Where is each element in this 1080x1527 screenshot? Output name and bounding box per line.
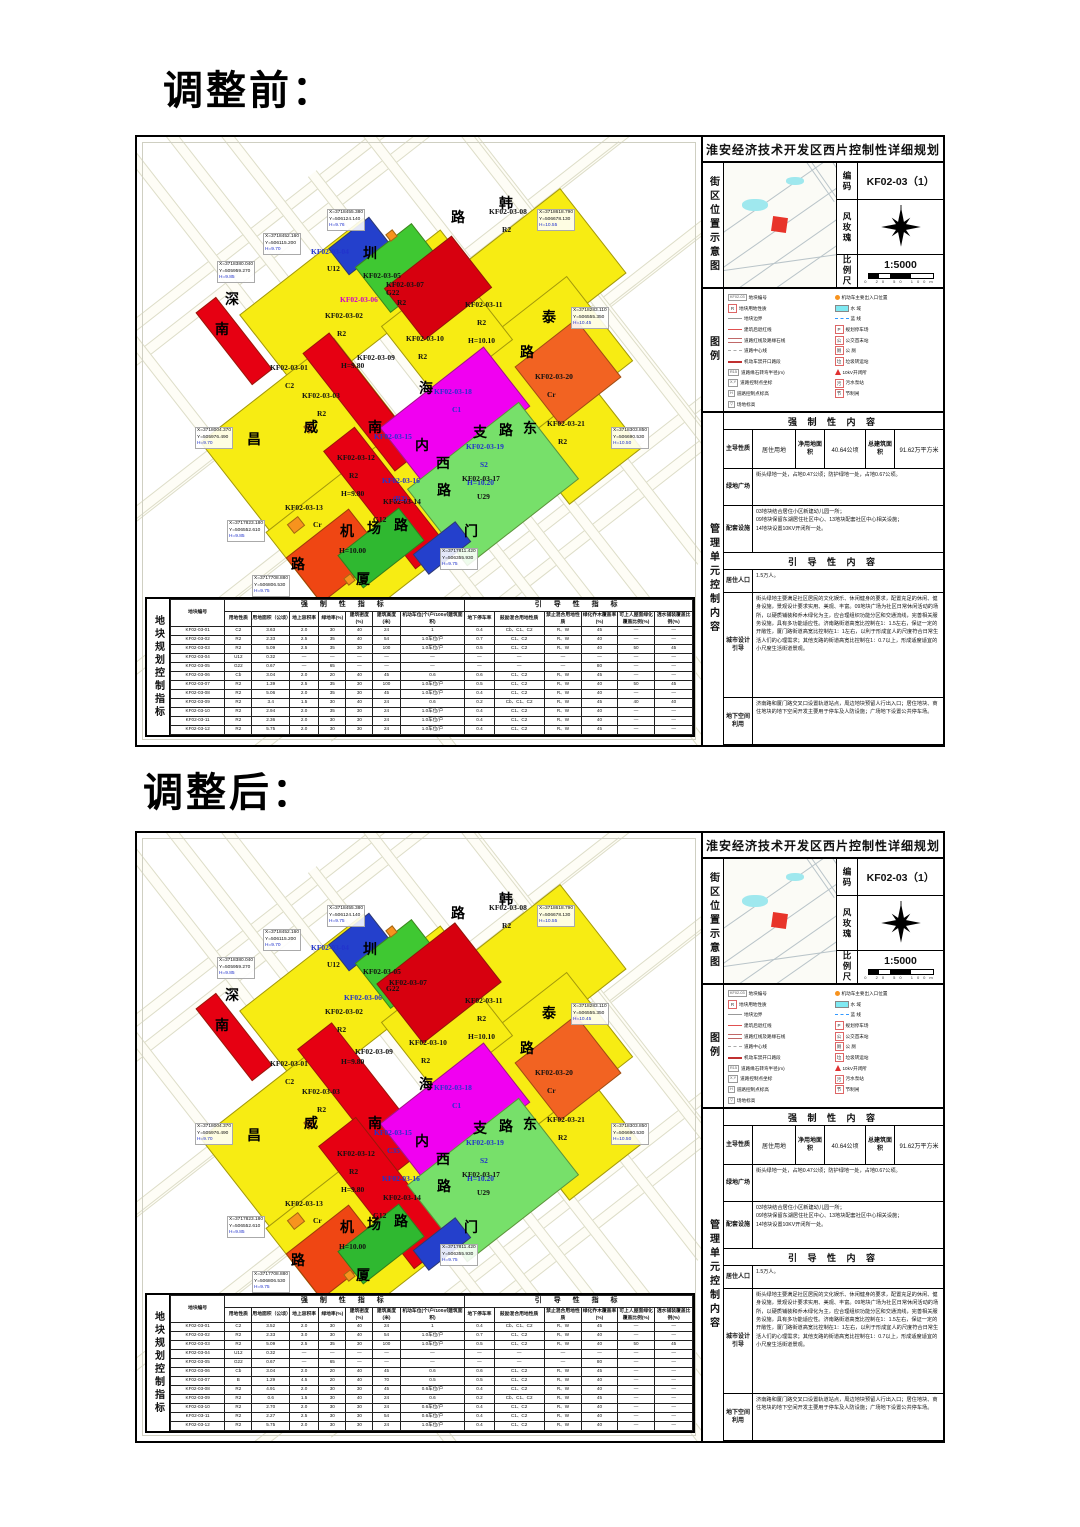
table-cell: — bbox=[319, 653, 346, 662]
green-space-row: 绿地广场 街头绿地一处，占地0.47公顷；防护绿地一处，占地0.67公顷。 bbox=[724, 469, 943, 506]
location-section-label: 街区位置示意图 bbox=[703, 859, 724, 983]
parcel-label: R2 bbox=[397, 298, 406, 307]
legend-item: X,Y道路控制点坐标 bbox=[728, 1074, 835, 1083]
table-row: KF02-03-09R23.41.53040240.60.2Cb、C1、C2R、… bbox=[171, 698, 693, 707]
road-name-char: 内 bbox=[415, 435, 429, 455]
table-cell: 1.0车位/户 bbox=[400, 635, 465, 644]
cp-x: X=3718452.160 bbox=[265, 930, 299, 937]
table-cell: 30 bbox=[319, 716, 346, 725]
table-cell: 20 bbox=[319, 1376, 346, 1385]
table-cell: 2.5 bbox=[289, 635, 318, 644]
legend-item: KF02-03地块编号 bbox=[728, 293, 835, 302]
legend-swatch bbox=[728, 338, 742, 343]
table-cell: 24 bbox=[373, 725, 400, 734]
table-cell: — bbox=[346, 1358, 373, 1367]
indicator-table: 地块编号强 制 性 指 标引 导 性 指 标用地性质用地面积（公顷）地上容积率绿… bbox=[170, 599, 693, 735]
table-cell: 4.5 bbox=[289, 1376, 318, 1385]
guiding-title: 引 导 性 内 容 bbox=[724, 1249, 943, 1266]
road-name-char: 内 bbox=[415, 1131, 429, 1151]
legend-item: 机动车主要出入口位置 bbox=[835, 293, 942, 302]
parcel-label: KF02-03-06 bbox=[344, 993, 382, 1002]
road-name-char: 海 bbox=[419, 1074, 433, 1094]
table-cell: R、W bbox=[544, 707, 582, 716]
table-cell: — bbox=[617, 635, 655, 644]
parcel-label: R2 bbox=[317, 409, 326, 418]
cp-h: H=10.55 bbox=[539, 919, 573, 926]
table-cell: U12 bbox=[225, 653, 252, 662]
table-row: KF02-03-12R25.752.03030241.0车位/户0.4C1、C2… bbox=[171, 725, 693, 734]
code-label: 编码 bbox=[837, 163, 858, 199]
table-cell: 2.33 bbox=[252, 635, 290, 644]
table-cell: 3.4 bbox=[252, 698, 290, 707]
table-cell: 50 bbox=[617, 1340, 655, 1349]
road-name-char: 门 bbox=[464, 521, 478, 541]
road-name-char: 泰 bbox=[542, 1003, 556, 1023]
table-cell: 1.0车位/户 bbox=[400, 1331, 465, 1340]
table-cell: C1、C2 bbox=[494, 644, 544, 653]
legend-item-label: 10kV开闭所 bbox=[843, 368, 867, 377]
code-row: 编码 KF02-03（1） bbox=[837, 859, 943, 896]
table-cell: 1.0车位/户 bbox=[400, 1421, 465, 1430]
table-cell: 0.5 bbox=[400, 1376, 465, 1385]
table-header-cell: 地块编号 bbox=[171, 1296, 225, 1323]
indicator-table-host: 地块编号强 制 性 指 标引 导 性 指 标用地性质用地面积（公顷）地上容积率绿… bbox=[170, 1295, 693, 1431]
table-header-cell: 绿化乔木覆盖率(%) bbox=[582, 1307, 617, 1322]
table-cell: — bbox=[373, 662, 400, 671]
parcel-label: KF02-03-12 bbox=[337, 1149, 375, 1158]
location-right-column: 编码 KF02-03（1） 风玫瑰 bbox=[837, 163, 943, 287]
guiding-title: 引 导 性 内 容 bbox=[724, 553, 943, 570]
green-space-label: 绿地广场 bbox=[724, 1165, 753, 1201]
road-name-char: 路 bbox=[437, 1176, 451, 1196]
table-cell: C1、C2 bbox=[494, 1340, 544, 1349]
table-cell: 0.6 bbox=[252, 1394, 290, 1403]
table-cell: 2.94 bbox=[252, 707, 290, 716]
table-cell: — bbox=[617, 716, 655, 725]
legend-item-label: 道路控制点坐标 bbox=[740, 1074, 772, 1083]
control-point: X=3718618.790Y=506678.130H=10.55 bbox=[537, 209, 575, 231]
table-cell: 1.0车位/户 bbox=[400, 680, 465, 689]
table-cell: 3.04 bbox=[252, 1367, 290, 1376]
table-cell: R、W bbox=[544, 698, 582, 707]
table-cell: KF02-03-06 bbox=[171, 1367, 225, 1376]
table-cell: 24 bbox=[373, 1322, 400, 1331]
control-point: X=3717708.880Y=506806.530H=9.75 bbox=[252, 1271, 290, 1293]
legend-item: P规划停车场 bbox=[835, 1021, 942, 1030]
legend-item: R地块用地性质 bbox=[728, 304, 835, 313]
table-header-cell: 禁止混合用地性质 bbox=[544, 1307, 582, 1322]
table-cell: KF02-03-01 bbox=[171, 1322, 225, 1331]
parcel-label: R2 bbox=[349, 471, 358, 480]
parcel-label: KF02-03-18 bbox=[434, 387, 472, 396]
table-cell: R、W bbox=[544, 1340, 582, 1349]
legend-item: 公公交首末站 bbox=[835, 336, 942, 345]
parcel-label: KF02-03-04 bbox=[311, 943, 349, 952]
road-name-char: 路 bbox=[394, 1211, 408, 1231]
legend-item-label: 道路中心线 bbox=[744, 1042, 767, 1051]
minimap-street bbox=[732, 929, 837, 983]
table-cell: 45 bbox=[582, 671, 617, 680]
minimap-street bbox=[771, 859, 837, 908]
legend-swatch: R bbox=[728, 1000, 737, 1009]
page: { "headings": { "before": "调整前：", "after… bbox=[0, 0, 1080, 1527]
table-cell: R2 bbox=[225, 644, 252, 653]
table-row: KF02-03-07R21.392.535301001.0车位/户0.5C1、C… bbox=[171, 680, 693, 689]
table-row: KF02-03-08R24.912.03030450.6车位/户0.4C1、C2… bbox=[171, 1385, 693, 1394]
cp-x: X=3718004.370 bbox=[197, 428, 231, 435]
legend-item-label: 公交首末站 bbox=[846, 1032, 869, 1041]
table-cell: 1.29 bbox=[252, 1376, 290, 1385]
parcel-label: R2 bbox=[337, 1025, 346, 1034]
legend-item-label: 10kV开闭所 bbox=[843, 1064, 867, 1073]
table-cell: R、W bbox=[544, 716, 582, 725]
table-cell: 0.4 bbox=[465, 1322, 494, 1331]
table-cell: 30 bbox=[319, 698, 346, 707]
legend-swatch bbox=[728, 1046, 742, 1047]
table-cell: — bbox=[655, 635, 693, 644]
legend-swatch bbox=[728, 1034, 742, 1039]
table-cell: 1 bbox=[400, 1322, 465, 1331]
cp-h: H=9.70 bbox=[197, 1137, 231, 1144]
legend-item: ▽场地标高 bbox=[728, 400, 835, 409]
table-cell: 0.67 bbox=[252, 662, 290, 671]
parcel-label: KF02-03-03 bbox=[302, 1087, 340, 1096]
legend-swatch: 公 bbox=[835, 1032, 844, 1041]
table-row: KF02-03-07B1.294.52040700.50.5C1、C2R、W40… bbox=[171, 1376, 693, 1385]
cp-h: H=9.70 bbox=[265, 247, 299, 254]
table-cell: — bbox=[655, 1367, 693, 1376]
table-cell: 30 bbox=[346, 1403, 373, 1412]
cp-x: X=3718455.380 bbox=[329, 210, 363, 217]
table-cell: 2.0 bbox=[289, 626, 318, 635]
table-cell: R2 bbox=[225, 716, 252, 725]
legend-item: 机动车主要出入口位置 bbox=[835, 989, 942, 998]
table-header-cell: 鼓励混合用地性质 bbox=[494, 1307, 544, 1322]
table-cell: C1、C2 bbox=[494, 1367, 544, 1376]
table-cell: 24 bbox=[373, 1394, 400, 1403]
net-area-label: 净用地面积 bbox=[796, 1126, 825, 1164]
control-point: X=3717811.420Y=506355.930H=9.75 bbox=[440, 1244, 478, 1266]
table-cell: R、W bbox=[544, 671, 582, 680]
legend-item-label: 污水泵站 bbox=[846, 378, 864, 387]
road-name-char: 泰 bbox=[542, 307, 556, 327]
parcel-label: KF02-03-17 bbox=[462, 1170, 500, 1179]
table-cell: 30 bbox=[346, 1340, 373, 1349]
table-cell: 50 bbox=[617, 644, 655, 653]
table-cell: C2 bbox=[225, 626, 252, 635]
table-cell: R、W bbox=[544, 1331, 582, 1340]
mandatory-summary-row: 主导性质 居住用地 净用地面积 40.64公顷 总建筑面积 91.62万平方米 bbox=[724, 1126, 943, 1165]
road-name-char: 威 bbox=[304, 417, 318, 437]
legend-item: 节节制闸 bbox=[835, 389, 942, 398]
control-point: X=3718303.850Y=506690.530H=10.50 bbox=[611, 427, 649, 449]
cp-h: H=9.75 bbox=[442, 562, 476, 569]
cp-x: X=3718380.040 bbox=[219, 262, 253, 269]
legend-swatch: R15 bbox=[728, 369, 739, 376]
table-cell: 40 bbox=[655, 698, 693, 707]
table-cell: — bbox=[289, 662, 318, 671]
windrose-label: 风玫瑰 bbox=[837, 896, 858, 950]
table-cell: KF02-03-07 bbox=[171, 680, 225, 689]
legend-swatch: R bbox=[728, 304, 737, 313]
parcel-label: KF02-03-13 bbox=[285, 1199, 323, 1208]
legend-item-label: 规划停车场 bbox=[846, 1021, 869, 1030]
table-cell: — bbox=[655, 707, 693, 716]
net-area-label: 净用地面积 bbox=[796, 430, 825, 468]
population-row: 居住人口 1.5万人。 bbox=[724, 570, 943, 593]
legend-item: 地块边界 bbox=[728, 314, 835, 323]
legend-column-right: 机动车主要出入口位置水 域蓝 线P规划停车场公公交首末站厕公 厕垃垃圾转运站10… bbox=[835, 293, 942, 409]
control-point: X=3717823.180Y=506552.610H=9.85 bbox=[227, 1216, 265, 1238]
table-header-cell: 鼓励混合用地性质 bbox=[494, 611, 544, 626]
road-name-char: 厦 bbox=[356, 569, 370, 589]
parcel-label: KF02-03-03 bbox=[302, 391, 340, 400]
cp-h: H=9.75 bbox=[329, 919, 363, 926]
table-cell: 0.7 bbox=[465, 635, 494, 644]
control-point: X=3717823.180Y=506552.610H=9.85 bbox=[227, 520, 265, 542]
table-cell: 45 bbox=[582, 626, 617, 635]
info-panel: 淮安经济技术开发区西片控制性详细规划 街区位置示意图 编码 KF02-03（1）… bbox=[701, 137, 943, 745]
sheet-before: 深南圳路韩泰路海南内支路东西路门机场路厦路昌威KF02-03-02R2KF02-… bbox=[135, 135, 945, 747]
facility-row: 配套设施 03地块结合居住小区新建幼儿园一所； 09地块保留东湖居住社区中心、1… bbox=[724, 1202, 943, 1249]
table-cell: — bbox=[655, 716, 693, 725]
windrose-icon bbox=[879, 205, 923, 249]
table-cell: — bbox=[582, 1349, 617, 1358]
table-cell: 0.4 bbox=[465, 725, 494, 734]
cp-x: X=3717823.180 bbox=[229, 521, 263, 528]
parcel-label: R2 bbox=[502, 921, 511, 930]
legend-item-label: 道路红线及路缘石线 bbox=[744, 336, 785, 345]
table-cell: 2.0 bbox=[289, 671, 318, 680]
parcel-label: KF02-03-01 bbox=[270, 1059, 308, 1068]
cp-h: H=9.85 bbox=[229, 534, 263, 541]
parcel-label: Cr bbox=[547, 1086, 556, 1095]
table-cell: 30 bbox=[319, 725, 346, 734]
underground-label: 地下空间利用 bbox=[724, 698, 753, 744]
table-cell: 30 bbox=[319, 1412, 346, 1421]
table-cell: 4.91 bbox=[252, 1385, 290, 1394]
table-cell: — bbox=[400, 653, 465, 662]
legend-item: R地块用地性质 bbox=[728, 1000, 835, 1009]
table-cell: 40 bbox=[582, 635, 617, 644]
road-name-char: 路 bbox=[291, 1250, 305, 1270]
control-point: X=3718380.040Y=505959.270H=9.85 bbox=[217, 957, 255, 979]
table-cell: 40 bbox=[346, 1394, 373, 1403]
facility-text: 03地块结合居住小区新建幼儿园一所； 09地块保留东湖居住社区中心、13地块配套… bbox=[753, 506, 943, 552]
legend-swatch: R15 bbox=[728, 1065, 739, 1072]
facility-row: 配套设施 03地块结合居住小区新建幼儿园一所； 09地块保留东湖居住社区中心、1… bbox=[724, 506, 943, 553]
control-point: X=3718303.850Y=506690.530H=10.50 bbox=[611, 1123, 649, 1145]
table-cell: 40 bbox=[617, 698, 655, 707]
parcel-label: Cr bbox=[547, 390, 556, 399]
road-name-char: 路 bbox=[520, 1038, 534, 1058]
table-row: KF02-03-05G220.67—65——————80—— bbox=[171, 1358, 693, 1367]
underground-text: 济南路和厦门路交叉口设置轨道站点，周边地块预留人行出入口；居住地块、商住地块的地… bbox=[753, 698, 943, 744]
indicator-table-side-label: 地块规划控制指标 bbox=[147, 599, 170, 735]
legend-swatch: 厕 bbox=[835, 346, 844, 355]
table-cell: 35 bbox=[319, 707, 346, 716]
scale-ticks: 0 20 50 100m bbox=[864, 975, 936, 980]
table-row: KF02-03-03R25.092.535301001.0车位/户0.5C1、C… bbox=[171, 644, 693, 653]
table-cell: — bbox=[494, 662, 544, 671]
road-name-char: 东 bbox=[523, 418, 537, 438]
table-header-cell: 用地面积（公顷） bbox=[252, 611, 290, 626]
table-cell: 40 bbox=[582, 1385, 617, 1394]
parcel-label: KF02-03-15 bbox=[374, 1128, 412, 1137]
location-section: 街区位置示意图 编码 KF02-03（1） 风玫瑰 bbox=[703, 163, 943, 289]
table-cell: 35 bbox=[319, 689, 346, 698]
cp-x: X=3718303.850 bbox=[613, 428, 647, 435]
location-minimap bbox=[724, 163, 837, 287]
table-header-cell: 强 制 性 指 标 bbox=[225, 600, 465, 612]
cp-h: H=10.55 bbox=[539, 223, 573, 230]
parcel-label: U12 bbox=[327, 960, 340, 969]
table-cell: Cb、C1、C2 bbox=[494, 1322, 544, 1331]
table-cell: — bbox=[655, 1322, 693, 1331]
table-cell: — bbox=[655, 1331, 693, 1340]
legend-item-label: 道路中心线 bbox=[744, 346, 767, 355]
table-cell: 0.32 bbox=[252, 653, 290, 662]
table-row: KF02-03-03R25.092.535301001.0车位/户0.5C1、C… bbox=[171, 1340, 693, 1349]
control-point: X=3718283.110Y=506555.350H=10.45 bbox=[571, 1003, 609, 1025]
table-cell: — bbox=[544, 653, 582, 662]
legend-item-label: 机动车禁开口路段 bbox=[744, 357, 781, 366]
parcel-label: KF02-03-06 bbox=[340, 295, 378, 304]
table-cell: 1.0车位/户 bbox=[400, 716, 465, 725]
table-cell: — bbox=[373, 1358, 400, 1367]
table-cell: 45 bbox=[582, 698, 617, 707]
table-cell: — bbox=[465, 653, 494, 662]
plan-sheet: 深南圳路韩泰路海南内支路东西路门机场路厦路昌威KF02-03-02R2KF02-… bbox=[135, 831, 945, 1443]
parcel-label: KF02-03-10 bbox=[409, 1038, 447, 1047]
design-guidance-text: 街头绿地主要满足社区居民的文化娱乐、休闲健身的要求，配置充足的休闲、健身设施，景… bbox=[753, 593, 943, 697]
table-cell: C1、C2 bbox=[494, 1376, 544, 1385]
table-cell: 0.4 bbox=[465, 689, 494, 698]
road-name-char: 支 bbox=[473, 1118, 487, 1138]
table-cell: 2.5 bbox=[289, 644, 318, 653]
table-row: KF02-03-02R22.332.53540541.0车位/户0.7C1、C2… bbox=[171, 635, 693, 644]
table-cell: R、W bbox=[544, 725, 582, 734]
parcel-label: KF02-03-04 bbox=[311, 247, 349, 256]
parcel-label: G12 bbox=[373, 1211, 386, 1220]
legend-item: 污污水泵站 bbox=[835, 378, 942, 387]
location-section: 街区位置示意图 编码 KF02-03（1） 风玫瑰 bbox=[703, 859, 943, 985]
table-row: KF02-03-06Cb3.042.02040450.60.6C1、C2R、W4… bbox=[171, 671, 693, 680]
legend-item: H道路控制点标高 bbox=[728, 1085, 835, 1094]
control-point: X=3718455.380Y=506124.140H=9.76 bbox=[327, 209, 365, 231]
table-row: KF02-03-06Cb3.042.02040450.60.6C1、C2R、W4… bbox=[171, 1367, 693, 1376]
parcel-label: KF02-03-02 bbox=[325, 1007, 363, 1016]
legend-swatch: X,Y bbox=[728, 1075, 738, 1082]
table-header-cell: 绿地率(%) bbox=[319, 611, 346, 626]
parcel-label: KF02-03-07 bbox=[389, 978, 427, 987]
legend-swatch bbox=[835, 1001, 849, 1008]
cp-x: X=3718618.790 bbox=[539, 906, 573, 913]
table-cell: R2 bbox=[225, 707, 252, 716]
legend-item: KF02-03地块编号 bbox=[728, 989, 835, 998]
road-name-char: 路 bbox=[394, 515, 408, 535]
table-cell: — bbox=[617, 1349, 655, 1358]
plan-sheet: 深南圳路韩泰路海南内支路东西路门机场路厦路昌威KF02-03-02R2KF02-… bbox=[135, 135, 945, 747]
legend-section: 图例 KF02-03地块编号R地块用地性质地块边界建筑后退红线道路红线及路缘石线… bbox=[703, 289, 943, 413]
table-cell: KF02-03-03 bbox=[171, 1340, 225, 1349]
legend-item: R15道路缘石转弯半径(m) bbox=[728, 1064, 835, 1073]
control-section: 管理单元控制内容 强 制 性 内 容 主导性质 居住用地 净用地面积 40.64… bbox=[703, 413, 943, 745]
table-cell: 40 bbox=[346, 1367, 373, 1376]
table-cell: 0.4 bbox=[465, 626, 494, 635]
table-cell: 40 bbox=[582, 1340, 617, 1349]
table-cell: 3.04 bbox=[252, 671, 290, 680]
road-name-char: 西 bbox=[436, 1149, 450, 1169]
parcel-label: KF02-03-01 bbox=[270, 363, 308, 372]
table-cell: C1、C2 bbox=[494, 689, 544, 698]
table-cell: G22 bbox=[225, 1358, 252, 1367]
green-space-row: 绿地广场 街头绿地一处，占地0.47公顷；防护绿地一处，占地0.67公顷。 bbox=[724, 1165, 943, 1202]
table-cell: 3.0 bbox=[289, 1331, 318, 1340]
table-cell: 30 bbox=[319, 1421, 346, 1430]
table-cell: 30 bbox=[346, 680, 373, 689]
underground-text: 济南路和厦门路交叉口设置轨道站点，周边地块预留人行出入口；居住地块、商住地块的地… bbox=[753, 1394, 943, 1440]
table-cell: R2 bbox=[225, 1403, 252, 1412]
cp-h: H=9.75 bbox=[254, 1285, 288, 1292]
table-cell: 5.75 bbox=[252, 725, 290, 734]
table-cell: — bbox=[655, 671, 693, 680]
legend-item: 垃垃圾转运站 bbox=[835, 1053, 942, 1062]
table-cell: — bbox=[655, 1358, 693, 1367]
control-point: X=3718452.160Y=506115.200H=9.70 bbox=[263, 233, 301, 255]
road-name-char: 海 bbox=[419, 378, 433, 398]
legend-item-label: 公交首末站 bbox=[846, 336, 869, 345]
table-header-cell: 可上人屋面绿化覆盖比例(%) bbox=[617, 611, 655, 626]
table-header-cell: 地下停车率 bbox=[465, 611, 494, 626]
legend-item-label: 地块用地性质 bbox=[739, 304, 767, 313]
nature-label: 主导性质 bbox=[724, 430, 753, 468]
table-header-cell: 可上人屋面绿化覆盖比例(%) bbox=[617, 1307, 655, 1322]
windrose-row: 风玫瑰 bbox=[837, 200, 943, 255]
management-unit-label: 管理单元控制内容 bbox=[703, 1109, 724, 1441]
legend-column-left: KF02-03地块编号R地块用地性质地块边界建筑后退红线道路红线及路缘石线道路中… bbox=[728, 989, 835, 1105]
net-area-value: 40.64公顷 bbox=[825, 1126, 866, 1164]
table-cell: — bbox=[655, 1349, 693, 1358]
table-cell: — bbox=[617, 1385, 655, 1394]
legend-item: ▽场地标高 bbox=[728, 1096, 835, 1105]
legend-item: 道路中心线 bbox=[728, 346, 835, 355]
legend-column-right: 机动车主要出入口位置水 域蓝 线P规划停车场公公交首末站厕公 厕垃垃圾转运站10… bbox=[835, 989, 942, 1105]
parcel-label: U29 bbox=[477, 492, 490, 501]
table-cell: R2 bbox=[225, 1385, 252, 1394]
minimap-street bbox=[732, 233, 837, 287]
table-cell: 80 bbox=[582, 1358, 617, 1367]
table-cell: 0.7 bbox=[465, 1331, 494, 1340]
scale-row: 比例尺 1:5000 0 20 50 100m bbox=[837, 255, 943, 287]
table-header-cell: 用地性质 bbox=[225, 1307, 252, 1322]
parcel-label: U29 bbox=[477, 1188, 490, 1197]
road-name-char: 南 bbox=[215, 319, 229, 339]
table-cell: — bbox=[655, 662, 693, 671]
legend-item: 10kV开闭所 bbox=[835, 1064, 942, 1073]
table-cell: — bbox=[655, 1421, 693, 1430]
nature-value: 居住用地 bbox=[753, 430, 796, 468]
parcel-label: R2 bbox=[349, 1167, 358, 1176]
table-cell: 0.5 bbox=[465, 644, 494, 653]
parcel-label: KF02-03-02 bbox=[325, 311, 363, 320]
table-header-cell: 禁止混合用地性质 bbox=[544, 611, 582, 626]
table-cell: Cb、C1、C2 bbox=[494, 1394, 544, 1403]
legend-item-label: 规划停车场 bbox=[846, 325, 869, 334]
table-cell: 45 bbox=[373, 671, 400, 680]
table-row: KF02-03-12R25.752.03030241.0车位/户0.4C1、C2… bbox=[171, 1421, 693, 1430]
legend-swatch: 厕 bbox=[835, 1042, 844, 1051]
